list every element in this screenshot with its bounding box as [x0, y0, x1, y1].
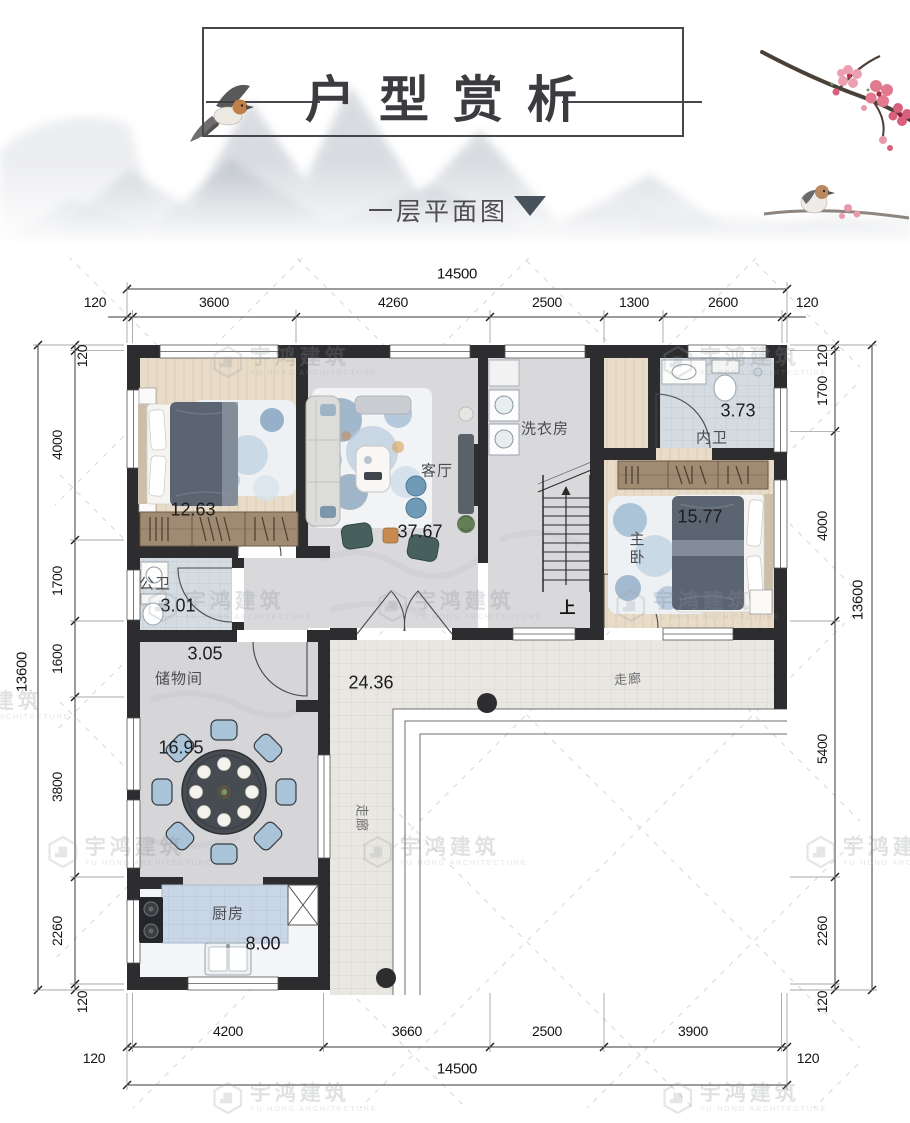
- watermark: 宇鸿建筑YU HONG ARCHITECTURE: [213, 1081, 377, 1115]
- dim-left-0: 120: [74, 345, 90, 367]
- column-dot: [477, 693, 497, 713]
- watermark: 宇鸿建筑YU HONG ARCHITECTURE: [663, 1081, 827, 1115]
- wardrobe-icon: [618, 461, 768, 489]
- dim-left-4: 3800: [49, 772, 65, 802]
- dim-bottom-4: 3900: [678, 1023, 708, 1039]
- dim-top-6: 120: [796, 294, 818, 310]
- dim-bottom-3: 2500: [532, 1023, 562, 1039]
- room-bedroom-area: 12.63: [170, 500, 215, 521]
- watermark: 宇鸿建筑YU HONG ARCHITECTURE: [616, 589, 780, 623]
- watermark: 宇鸿建筑YU HONG ARCHITECTURE: [148, 589, 312, 623]
- yuhong-logo-icon: [213, 345, 243, 379]
- dim-top-total: 14500: [437, 266, 477, 283]
- watermark: 宇鸿建筑YU HONG ARCHITECTURE: [378, 589, 542, 623]
- dim-left-2: 1700: [49, 566, 65, 596]
- dim-top-0: 120: [84, 294, 106, 310]
- room-storage-label: 储物间: [155, 668, 203, 689]
- watermark: 宇鸿建筑YU HONG ARCHITECTURE: [0, 689, 70, 723]
- room-kitchen-label: 厨房: [212, 903, 244, 924]
- dim-top-2: 4260: [378, 294, 408, 310]
- room-kitchen-area: 8.00: [245, 934, 280, 955]
- dim-right-2: 4000: [814, 511, 830, 541]
- dim-left-3: 1600: [49, 644, 65, 674]
- room-dining-area: 16.95: [158, 738, 203, 759]
- watermark: 宇鸿建筑YU HONG ARCHITECTURE: [663, 345, 827, 379]
- bed-icon: [138, 388, 296, 512]
- dim-right-5: 120: [814, 991, 830, 1013]
- dim-right-4: 2260: [814, 916, 830, 946]
- hallway-area: 24.36: [348, 673, 393, 694]
- room-storage-area: 3.05: [187, 644, 222, 665]
- dim-left-total: 13600: [14, 652, 31, 692]
- washer-dryer-icon: [489, 360, 519, 455]
- floor-plan-drawing: [0, 0, 910, 1123]
- page: { "header": { "title": "户型赏析", "subtitle…: [0, 0, 910, 1123]
- watermark: 宇鸿建筑YU HONG ARCHITECTURE: [213, 345, 377, 379]
- corridor-south-label: 走廊: [354, 804, 373, 832]
- dim-top-3: 2500: [532, 294, 562, 310]
- room-living-area: 37.67: [397, 522, 442, 543]
- stairs-up-label: 上: [559, 594, 576, 618]
- room-master-area: 15.77: [677, 507, 722, 528]
- room-living-label: 客厅: [421, 460, 453, 481]
- room-ensuite-label: 内卫: [696, 427, 728, 448]
- room-dining-label: 餐厅: [212, 785, 240, 804]
- dim-bottom-total: 14500: [437, 1061, 477, 1078]
- dim-bottom-5: 120: [797, 1050, 819, 1066]
- dim-top-4: 1300: [619, 294, 649, 310]
- room-ensuite-area: 3.73: [720, 401, 755, 422]
- dim-right-3: 5400: [814, 734, 830, 764]
- dim-right-total: 13600: [850, 580, 867, 620]
- wardrobe-icon: [140, 512, 298, 546]
- watermark: 宇鸿建筑YU HONG ARCHITECTURE: [48, 835, 212, 869]
- dim-left-5: 2260: [49, 916, 65, 946]
- column-dot: [376, 968, 396, 988]
- dim-bottom-1: 4200: [213, 1023, 243, 1039]
- dim-left-6: 120: [74, 991, 90, 1013]
- room-laundry-label: 洗衣房: [521, 418, 569, 439]
- watermark: 宇鸿建筑YU HONG ARCHITECTURE: [363, 835, 527, 869]
- dim-bottom-0: 120: [83, 1050, 105, 1066]
- dim-top-1: 3600: [199, 294, 229, 310]
- dim-top-5: 2600: [708, 294, 738, 310]
- dim-bottom-2: 3660: [392, 1023, 422, 1039]
- dim-right-1: 1700: [814, 376, 830, 406]
- dim-left-1: 4000: [49, 430, 65, 460]
- corridor-east-label: 走廊: [613, 668, 642, 689]
- room-master-label: 主卧: [627, 531, 648, 567]
- watermark: 宇鸿建筑YU HONG ARCHITECTURE: [806, 835, 910, 869]
